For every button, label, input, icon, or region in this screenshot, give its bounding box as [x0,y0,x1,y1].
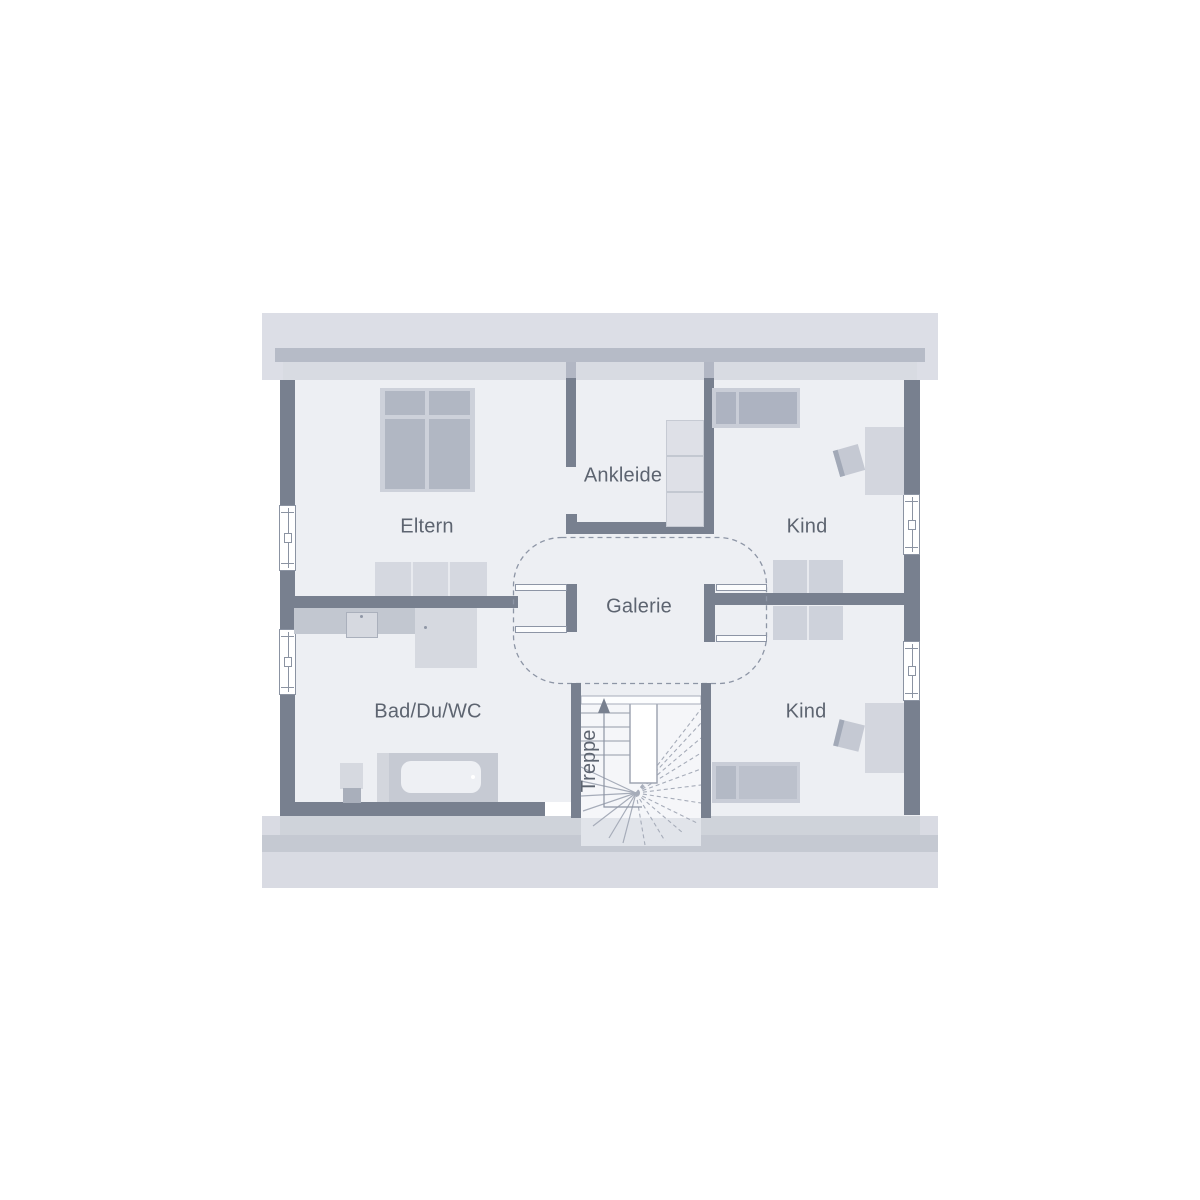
shower-drain-dot [424,626,427,629]
bed-eltern-pillow-left [385,391,425,415]
wardrobe-kind-top [773,560,843,593]
room-label-bad: Bad/Du/WC [374,701,481,724]
attic-strip-top [283,362,917,380]
bathtub-drain-dot [471,775,475,779]
desk-kind-bottom [865,703,904,773]
room-label-kind-bottom: Kind [786,701,827,724]
door-leaf-eltern [515,584,567,591]
bathtub-basin [401,761,481,793]
room-label-eltern: Eltern [400,516,453,539]
bed-kind-top-pillow [716,392,736,424]
window-right-2 [903,641,920,701]
window-handle [908,520,916,530]
shower [415,608,477,668]
wardrobe-ankleide [666,420,704,527]
dresser-eltern [375,562,487,596]
window-handle [908,666,916,676]
staircase: Treppe [571,683,711,848]
bathtub-step [377,753,389,802]
wall-exterior-right [904,380,920,815]
room-label-ankleide: Ankleide [584,465,662,488]
door-leaf-kind-bottom [716,635,767,642]
wall-eltern-bad [294,596,518,608]
floor-plan: Treppe Eltern Ankleide Kind Galerie Bad/… [0,0,1200,1200]
window-right-1 [903,494,920,555]
knee-wall-top [275,348,925,362]
room-label-treppe: Treppe [578,730,600,793]
window-handle [284,657,292,667]
window-left-2 [279,629,296,695]
bed-kind-bottom-mattress [739,766,797,799]
wall-eltern-ankleide [566,378,576,467]
roof-band-bottom-edge [262,852,938,888]
stairwell-wall-right [701,683,711,818]
bed-eltern-mattress-right [429,419,470,489]
sink-faucet-dot [360,615,363,618]
toilet-tank [340,763,363,789]
bed-kind-top-mattress [739,392,797,424]
door-leaf-bad [515,626,567,633]
window-handle [284,533,292,543]
bed-eltern-mattress-left [385,419,425,489]
wall-bottom-opening [545,802,571,816]
wardrobe-kind-bottom [773,606,843,640]
toilet-bowl [343,788,361,803]
bed-kind-bottom-pillow [716,766,736,799]
door-leaf-kind-top [716,584,767,591]
window-left-1 [279,505,296,571]
wall-exterior-left [280,380,295,816]
stair-landing-edge [581,696,701,704]
stair-void [630,702,657,783]
wall-bottom-bad [280,802,545,816]
room-label-galerie: Galerie [606,596,672,619]
bed-eltern-pillow-right [429,391,470,415]
room-label-kind-top: Kind [787,516,828,539]
desk-kind-top [865,427,904,495]
